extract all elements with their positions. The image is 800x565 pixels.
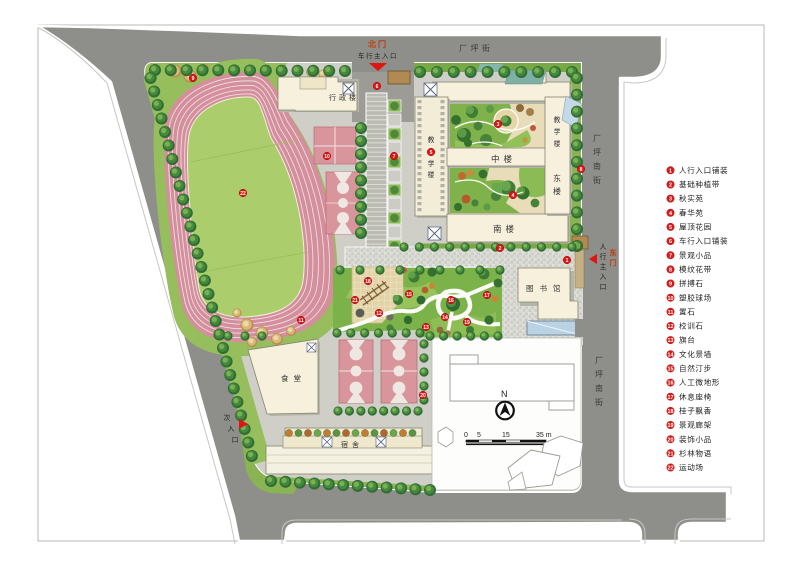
svg-text:16: 16 — [448, 298, 454, 304]
svg-text:10: 10 — [324, 154, 330, 160]
svg-text:宿舍: 宿舍 — [341, 440, 363, 449]
svg-text:模纹花带: 模纹花带 — [679, 264, 712, 274]
svg-text:4: 4 — [669, 211, 672, 217]
svg-text:13: 13 — [668, 338, 674, 344]
svg-text:19: 19 — [668, 423, 674, 429]
svg-text:12: 12 — [376, 311, 382, 317]
svg-text:15: 15 — [406, 292, 412, 298]
svg-text:8: 8 — [669, 268, 672, 274]
svg-text:20: 20 — [420, 393, 426, 399]
svg-text:图书馆: 图书馆 — [526, 283, 567, 293]
svg-text:5: 5 — [430, 150, 433, 156]
svg-text:景观小品: 景观小品 — [679, 250, 712, 260]
svg-text:桂子飘香: 桂子飘香 — [679, 406, 712, 416]
svg-text:春华苑: 春华苑 — [679, 207, 704, 217]
svg-text:人行主入口: 人行主入口 — [600, 243, 607, 291]
svg-text:22: 22 — [240, 191, 246, 197]
svg-text:旗台: 旗台 — [679, 335, 695, 345]
svg-text:9: 9 — [192, 76, 195, 82]
svg-text:南楼: 南楼 — [493, 224, 518, 234]
svg-text:7: 7 — [669, 253, 672, 259]
svg-text:5: 5 — [669, 225, 672, 231]
svg-text:20: 20 — [668, 437, 674, 443]
svg-text:16: 16 — [668, 381, 674, 387]
svg-text:12: 12 — [668, 324, 674, 330]
svg-text:18: 18 — [365, 279, 371, 285]
svg-text:休息座椅: 休息座椅 — [679, 391, 712, 401]
svg-text:校训石: 校训石 — [679, 321, 704, 331]
svg-text:6: 6 — [669, 239, 672, 245]
svg-text:21: 21 — [668, 451, 674, 457]
svg-text:中楼: 中楼 — [491, 154, 516, 164]
svg-text:装饰小品: 装饰小品 — [679, 434, 712, 444]
svg-text:7: 7 — [393, 154, 396, 160]
svg-text:运动场: 运动场 — [679, 462, 704, 472]
svg-text:屋顶花园: 屋顶花园 — [679, 222, 712, 232]
svg-text:14: 14 — [668, 352, 674, 358]
svg-text:人行入口铺装: 人行入口铺装 — [679, 165, 728, 175]
svg-text:5: 5 — [477, 432, 481, 439]
svg-text:厂坪街: 厂坪街 — [459, 43, 494, 53]
svg-text:拼搏石: 拼搏石 — [679, 278, 704, 288]
svg-text:35 m: 35 m — [536, 432, 552, 439]
svg-text:14: 14 — [442, 315, 448, 321]
svg-text:文化景墙: 文化景墙 — [679, 349, 712, 359]
svg-text:车行主入口: 车行主入口 — [358, 51, 398, 60]
svg-text:11: 11 — [298, 318, 304, 324]
svg-text:15: 15 — [668, 367, 674, 373]
svg-text:食堂: 食堂 — [281, 373, 306, 383]
svg-text:4: 4 — [512, 193, 515, 199]
svg-text:塑胶球场: 塑胶球场 — [679, 292, 712, 302]
svg-text:17: 17 — [484, 293, 490, 299]
svg-text:13: 13 — [423, 325, 429, 331]
svg-text:N: N — [501, 389, 508, 399]
svg-text:2: 2 — [669, 183, 672, 189]
svg-text:杉林物语: 杉林物语 — [679, 448, 712, 458]
svg-text:18: 18 — [668, 409, 674, 415]
svg-text:15: 15 — [502, 432, 510, 439]
svg-text:基础种植带: 基础种植带 — [679, 179, 720, 189]
svg-text:21: 21 — [352, 298, 358, 304]
svg-text:北门: 北门 — [368, 39, 388, 49]
svg-text:1: 1 — [669, 168, 672, 174]
svg-text:景观廊架: 景观廊架 — [679, 420, 712, 430]
svg-text:秋实苑: 秋实苑 — [679, 193, 704, 203]
svg-text:0: 0 — [464, 432, 468, 439]
svg-text:自然汀步: 自然汀步 — [679, 363, 712, 373]
svg-text:车行入口铺装: 车行入口铺装 — [679, 236, 728, 246]
svg-text:2: 2 — [499, 246, 502, 252]
svg-text:17: 17 — [668, 395, 674, 401]
svg-text:11: 11 — [668, 310, 674, 316]
svg-text:22: 22 — [668, 466, 674, 472]
svg-text:19: 19 — [464, 320, 470, 326]
svg-text:8: 8 — [580, 167, 583, 173]
svg-text:3: 3 — [669, 197, 672, 203]
svg-text:9: 9 — [669, 282, 672, 288]
svg-text:教学楼: 教学楼 — [554, 115, 561, 148]
svg-text:6: 6 — [376, 84, 379, 90]
svg-text:3: 3 — [497, 122, 500, 128]
svg-text:1: 1 — [566, 258, 569, 264]
svg-text:人工微地形: 人工微地形 — [679, 377, 720, 387]
svg-text:置石: 置石 — [679, 307, 695, 316]
svg-text:10: 10 — [668, 296, 674, 302]
